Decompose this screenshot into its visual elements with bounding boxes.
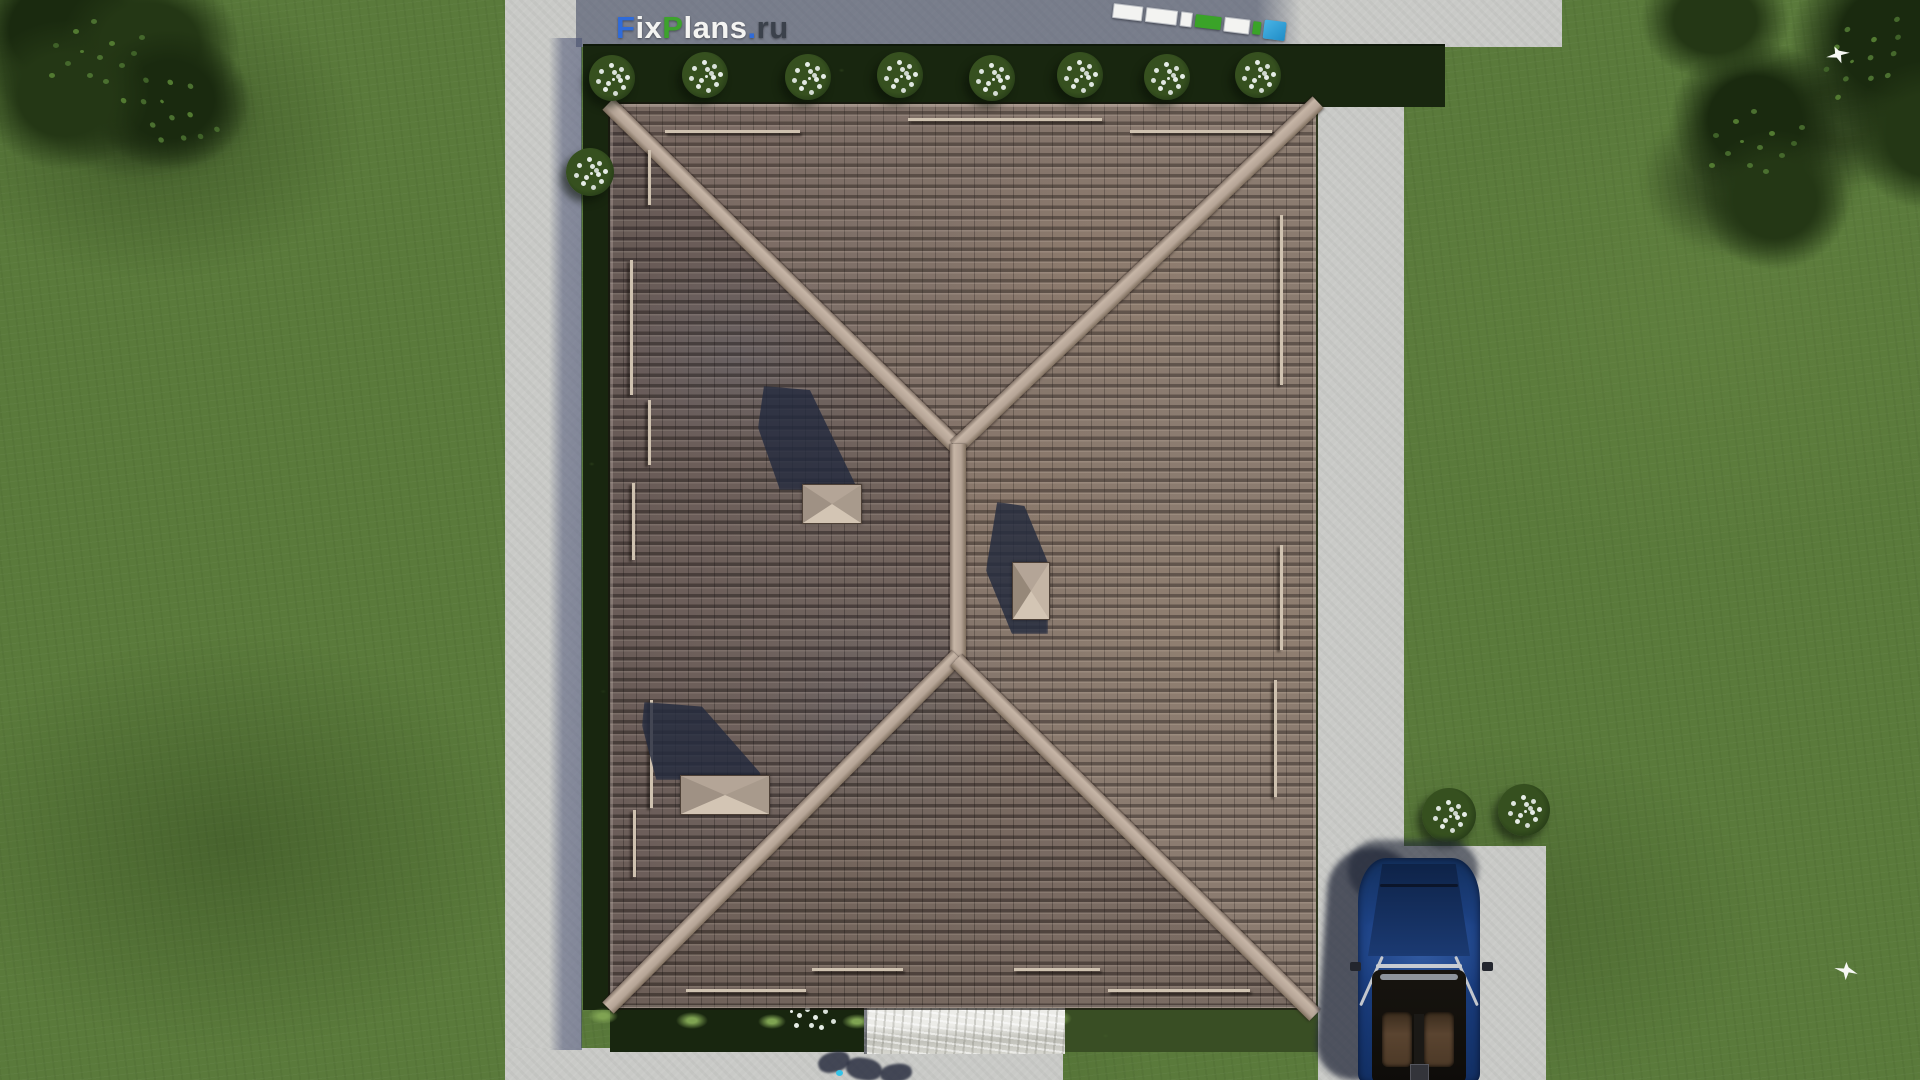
perimeter-path-right [1318,100,1404,852]
stone-walkway [864,1006,1065,1054]
chimney-shadow [758,386,858,490]
chimney [680,775,770,815]
snow-guard [1280,215,1283,385]
aerial-house-render: FixPlans.ru [0,0,1920,1080]
snow-guard [908,118,1102,121]
ruler-segment [1145,7,1179,26]
car-mirror-left [1350,962,1361,971]
flowering-bush [969,55,1015,101]
logo-letter: P [662,10,683,45]
snow-guard [648,400,651,465]
chimney-shadow [642,702,762,780]
snow-guard [1130,130,1272,133]
logo-letter: ru [757,10,789,45]
snow-guard [1014,968,1100,971]
roof-ridge-center [950,444,966,667]
roof-ridge-top-right [950,96,1323,452]
ruler-segment [1179,11,1193,27]
flowering-bush [877,52,923,98]
flowering-bush [1422,788,1476,842]
snow-guard [633,810,636,877]
ruler-segment [1223,17,1251,35]
lawn-strip-bottom-right [1064,1006,1318,1052]
car-console-detail [1410,1064,1429,1080]
snow-guard [630,260,633,395]
flowering-bush [566,148,614,196]
car-cockpit [1372,970,1466,1080]
snow-guard [1280,545,1283,650]
snow-guard [665,130,800,133]
flowering-bush [1057,52,1103,98]
ruler-segment [1252,21,1262,35]
ruler-end-cube [1263,20,1287,42]
car-rear-deck [1368,864,1470,956]
snow-guard [648,150,651,205]
flowering-bush [589,55,635,101]
snow-guard [1274,680,1277,797]
car-body [1358,858,1480,1080]
car-dashboard [1380,974,1458,980]
roof-ridge-bottom-right [950,654,1320,1021]
plant-tuft [758,1014,786,1029]
flowering-bush [682,52,728,98]
snow-guard [812,968,903,971]
flowering-bush [1498,784,1550,836]
logo-letter: F [616,10,635,45]
convertible-car [1318,838,1558,1080]
snow-guard [1108,989,1250,992]
chimney [1012,562,1050,620]
ruler-segment [1194,14,1221,30]
chimney [802,484,862,524]
car-mirror-right [1482,962,1493,971]
car-trunk-line [1380,884,1458,887]
snow-guard [632,483,635,560]
flowering-bush [1144,54,1190,100]
hip-roof [610,104,1316,1008]
logo-letter: ix [635,10,662,45]
flowering-bush [1235,52,1281,98]
ruler-segment [1112,3,1144,22]
flowering-bush [785,54,831,100]
logo-letter: lans [683,10,747,45]
blue-flower [836,1070,843,1076]
logo-letter: . [748,10,757,45]
car-seat-left [1382,1012,1412,1067]
watermark-logo: FixPlans.ru [616,12,789,43]
white-flowers-cluster [790,1010,793,1013]
car-seat-right [1424,1012,1454,1067]
plant-tuft [676,1012,708,1029]
car-windshield-frame [1376,964,1462,968]
garden-bed-left [583,100,612,1010]
snow-guard [686,989,806,992]
